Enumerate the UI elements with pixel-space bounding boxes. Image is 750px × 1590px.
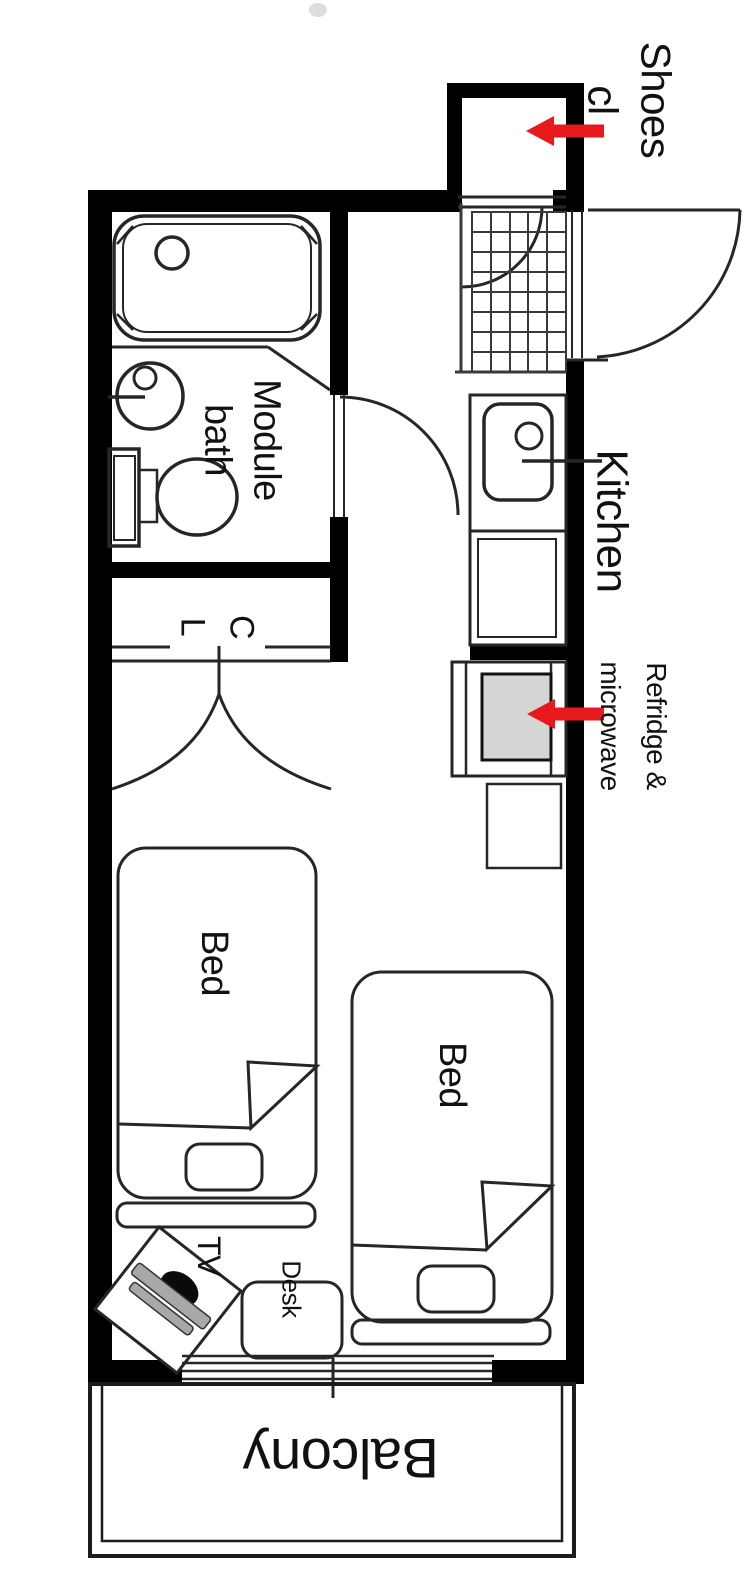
entry-door: [566, 210, 740, 360]
kitchen-label: Kitchen: [585, 449, 640, 592]
washer-space: [487, 784, 561, 868]
scan-artifact: [309, 3, 327, 17]
shoe-closet-door: [458, 197, 566, 287]
balcony-window: [182, 1356, 494, 1379]
balcony-label: Balcony: [243, 1423, 439, 1493]
refrigerator-label: Refridge & microwave: [587, 661, 679, 790]
bed-left-icon: [117, 848, 317, 1227]
bed-right-icon: [352, 972, 552, 1344]
shoes-closet-label: Shoes cl: [577, 40, 682, 161]
closet-doors: [112, 646, 331, 789]
module-bath-label: Module bath: [192, 379, 291, 501]
floor-plan-drawing: [0, 0, 750, 1590]
floor-plan-page: { "meta": { "type": "apartment-floor-pla…: [0, 0, 750, 1590]
closet-label: C L: [167, 615, 266, 639]
bathtub-icon: [114, 216, 320, 340]
desk-label: Desk: [275, 1260, 308, 1317]
bed-right-label: Bed: [427, 1042, 475, 1108]
tv-label: TV: [189, 1236, 229, 1276]
bathroom-sink-icon: [108, 363, 183, 429]
bed-left-label: Bed: [189, 930, 237, 996]
bath-door: [334, 395, 458, 517]
entry-tile-floor: [455, 203, 566, 372]
